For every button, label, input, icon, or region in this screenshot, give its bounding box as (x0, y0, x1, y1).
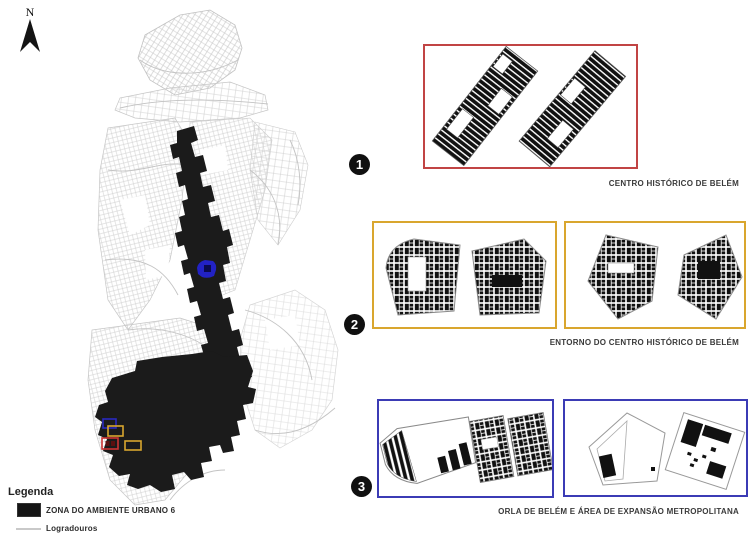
panel-1-label: CENTRO HISTÓRICO DE BELÉM (319, 179, 739, 188)
panel-3-sample-box-b (563, 399, 748, 497)
panel-3-badge: 3 (351, 476, 372, 497)
legend: Legenda ZONA DO AMBIENTE URBANO 6 Lograd… (8, 486, 258, 540)
panel-3-number: 3 (358, 480, 365, 493)
zone-swatch (17, 503, 41, 517)
panel-3b-blocks (565, 401, 746, 495)
legend-item-zone: ZONA DO AMBIENTE URBANO 6 (8, 503, 258, 517)
panel-1-sample-box (423, 44, 638, 169)
north-label: N (26, 5, 35, 19)
panel-2-badge: 2 (344, 314, 365, 335)
panel-3a-blocks (379, 401, 552, 496)
panel-3-sample-box-a (377, 399, 554, 498)
city-map (50, 0, 345, 520)
legend-item-zone-label: ZONA DO AMBIENTE URBANO 6 (46, 506, 175, 515)
panel-2-sample-box-b (564, 221, 746, 329)
panel-1-badge: 1 (349, 154, 370, 175)
legend-item-streets: Logradouros (8, 524, 258, 533)
panel-3-label: ORLA DE BELÉM E ÁREA DE EXPANSÃO METROPO… (319, 507, 739, 516)
street-line-swatch (16, 528, 41, 530)
legend-item-streets-label: Logradouros (46, 524, 98, 533)
panel-1-blocks (425, 46, 636, 167)
panel-2a-blocks (374, 223, 555, 327)
panel-2-sample-box-a (372, 221, 557, 329)
panel-2-label: ENTORNO DO CENTRO HISTÓRICO DE BELÉM (319, 338, 739, 347)
legend-title: Legenda (8, 486, 258, 498)
panel-2b-blocks (566, 223, 744, 327)
panel-1-number: 1 (356, 158, 363, 171)
figure-urban-zone-map: N (0, 0, 750, 551)
north-arrow-icon: N (8, 2, 44, 54)
panel-2-number: 2 (351, 318, 358, 331)
map-highlight-blob (197, 260, 216, 278)
